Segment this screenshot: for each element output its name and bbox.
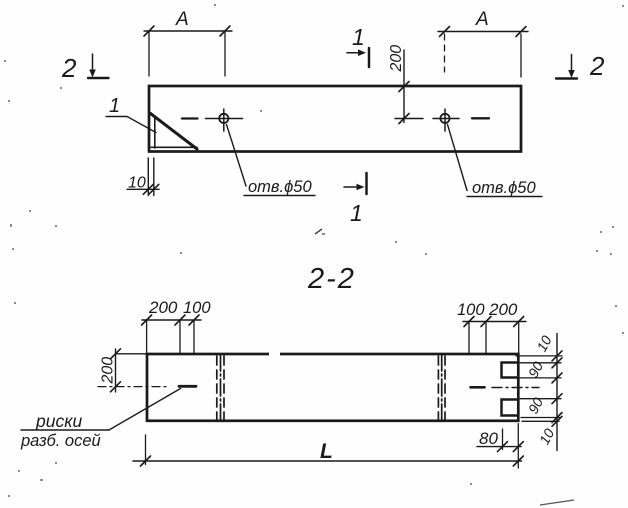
svg-text:A: A xyxy=(175,9,189,30)
svg-text:200: 200 xyxy=(488,300,518,319)
svg-text:100: 100 xyxy=(183,299,211,317)
svg-text:отв.ϕ50: отв.ϕ50 xyxy=(472,179,536,197)
svg-text:200: 200 xyxy=(148,298,178,317)
svg-text:риски: риски xyxy=(35,411,82,431)
svg-text:A: A xyxy=(475,9,489,30)
svg-text:100: 100 xyxy=(457,301,485,319)
svg-text:80: 80 xyxy=(479,429,498,448)
svg-text:200: 200 xyxy=(388,45,405,73)
svg-text:отв.ϕ50: отв.ϕ50 xyxy=(248,178,312,196)
svg-text:2-2: 2-2 xyxy=(307,263,356,295)
svg-text:1: 1 xyxy=(109,95,120,117)
svg-text:L: L xyxy=(320,440,333,463)
svg-text:2: 2 xyxy=(589,51,605,81)
svg-text:10: 10 xyxy=(128,174,146,191)
svg-text:2: 2 xyxy=(61,53,77,83)
svg-text:200: 200 xyxy=(100,357,117,385)
svg-text:1: 1 xyxy=(352,24,365,50)
svg-text:разб. осей: разб. осей xyxy=(20,432,101,450)
svg-text:1: 1 xyxy=(350,200,363,226)
